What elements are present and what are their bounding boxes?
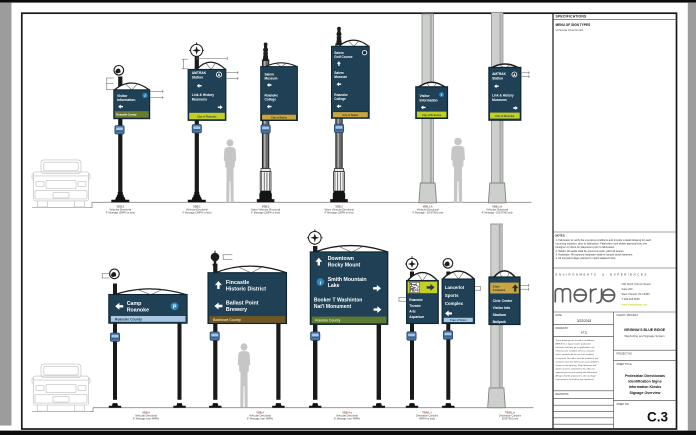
svg-text:KTQ: KTQ — [581, 331, 588, 335]
svg-text:(4MPH or less): (4MPH or less) — [419, 418, 435, 421]
svg-text:and is verified with the accou: and is verified with the account conditi… — [556, 353, 595, 356]
svg-text:100 North Church Street: 100 North Church Street — [622, 282, 651, 286]
svg-text:Aquarium: Aquarium — [409, 315, 424, 319]
svg-text:Botetourt County: Botetourt County — [213, 318, 241, 322]
svg-text:City of Salem: City of Salem — [271, 116, 288, 119]
svg-text:MERJE LLC layout and/or produc: MERJE LLC layout and/or production — [556, 343, 592, 346]
svg-text:Smith Mountain: Smith Mountain — [328, 277, 367, 283]
svg-text:8" Message (non 4MPH): 8" Message (non 4MPH) — [334, 418, 360, 421]
svg-text:Ballast Point: Ballast Point — [226, 301, 259, 307]
svg-text:8" Message (non 4MPH): 8" Message (non 4MPH) — [133, 418, 159, 421]
svg-text:These drawings are issued in c: These drawings are issued in confidence. — [556, 340, 596, 342]
svg-text:DRAWN BY: DRAWN BY — [556, 327, 569, 330]
svg-text:Complex: Complex — [493, 288, 506, 292]
svg-text:MENU OF SIGN TYPES: MENU OF SIGN TYPES — [556, 23, 591, 27]
svg-text:SPECIFICATIONS: SPECIFICATIONS — [556, 15, 588, 19]
svg-text:3. Hardware: All exposed hardw: 3. Hardware: All exposed hardware shall … — [556, 252, 634, 256]
svg-text:4" Message (2MPH or less): 4" Message (2MPH or less) — [182, 212, 211, 215]
svg-text:Theatre: Theatre — [409, 304, 421, 308]
svg-text:SHEET NO.: SHEET NO. — [617, 403, 630, 406]
svg-text:Roanoke County: Roanoke County — [115, 317, 142, 321]
svg-text:Pedestrian Directionals: Pedestrian Directionals — [625, 374, 665, 378]
svg-text:Information Kiosks: Information Kiosks — [629, 385, 662, 389]
svg-text:4" Message (2MPH or less): 4" Message (2MPH or less) — [324, 212, 353, 215]
svg-text:T 484.266.0648: T 484.266.0648 — [622, 297, 641, 301]
svg-text:4" Message - EXISTING pole: 4" Message - EXISTING pole — [412, 212, 444, 215]
svg-text:Lake: Lake — [328, 283, 340, 289]
svg-text:2. Welds: All welds shall be g: 2. Welds: All welds shall be ground smoo… — [556, 249, 625, 253]
svg-text:requirements cleaned by sign s: requirements cleaned by sign significant… — [556, 378, 595, 381]
svg-text:Rocky Mount: Rocky Mount — [328, 263, 361, 269]
svg-text:approval prior to proceeding w: approval prior to proceeding with fabric… — [556, 371, 599, 374]
svg-text:Town of Vinton: Town of Vinton — [450, 319, 467, 322]
svg-text:City of Roanoke: City of Roanoke — [495, 115, 515, 118]
svg-text:College: College — [265, 98, 277, 102]
svg-text:Museum: Museum — [334, 75, 347, 79]
svg-text:methods shall only be re-appli: methods shall only be re-applicable to a… — [556, 346, 595, 349]
svg-text:City of Roanoke: City of Roanoke — [197, 114, 217, 118]
svg-text:C.3: C.3 — [647, 410, 669, 425]
svg-text:1. Fabricator to verify the mo: 1. Fabricator to verify the mounting con… — [556, 238, 652, 242]
svg-text:Vehicular Directionals: Vehicular Directionals — [556, 28, 584, 32]
svg-text:Nat'l Monument: Nat'l Monument — [314, 304, 352, 310]
svg-text:Historic District: Historic District — [226, 286, 266, 292]
svg-text:Booker T Washinton: Booker T Washinton — [314, 298, 362, 304]
svg-text:All sign shall be produced to: All sign shall be produced to site visit… — [556, 375, 597, 378]
svg-text:City of Salem: City of Salem — [342, 114, 359, 117]
svg-text:Visitor: Visitor — [420, 94, 431, 98]
svg-text:Roanoke: Roanoke — [409, 298, 423, 302]
svg-text:CLIENT / PROJECT: CLIENT / PROJECT — [617, 314, 639, 317]
svg-text:8" Message (non 4MPH): 8" Message (non 4MPH) — [247, 418, 273, 421]
svg-text:Downtown: Downtown — [328, 256, 354, 262]
svg-text:Suite 200: Suite 200 — [622, 287, 634, 291]
svg-text:Civic Center: Civic Center — [493, 299, 513, 303]
svg-text:Complex: Complex — [445, 301, 464, 306]
svg-text:mounting situation, prior to f: mounting situation, prior to fabrication… — [556, 242, 648, 246]
svg-text:Station: Station — [492, 77, 503, 81]
svg-text:PROJECT NO.: PROJECT NO. — [617, 353, 633, 356]
svg-text:Stadium: Stadium — [493, 313, 506, 317]
svg-text:VIRGINIA'S BLUE RIDGE: VIRGINIA'S BLUE RIDGE — [624, 328, 666, 332]
svg-text:variations from the dimensions: variations from the dimensions and condi… — [556, 360, 599, 363]
svg-text:Camp: Camp — [127, 301, 142, 307]
svg-text:EXISTING pole: EXISTING pole — [502, 418, 519, 421]
svg-text:Signage Overview: Signage Overview — [630, 391, 661, 395]
svg-text:City of Roanoke: City of Roanoke — [422, 114, 442, 117]
svg-text:AMTRAK: AMTRAK — [492, 72, 507, 76]
svg-text:Fincastle: Fincastle — [226, 280, 249, 286]
svg-text:DATE: DATE — [556, 314, 563, 317]
svg-text:Franklin County: Franklin County — [315, 319, 340, 323]
svg-text:Museums: Museums — [192, 98, 207, 102]
svg-text:Museums: Museums — [492, 98, 507, 102]
svg-text:4" Message (2MPH or less): 4" Message (2MPH or less) — [251, 212, 280, 215]
svg-text:4" Message - EXISTING pole: 4" Message - EXISTING pole — [482, 212, 514, 215]
svg-text:Ballpark: Ballpark — [493, 320, 506, 324]
svg-text:Station: Station — [192, 76, 203, 80]
svg-text:Designer or Client for placeme: Designer or Client for placement prior t… — [556, 245, 616, 249]
svg-text:shown on this drawing. Shop dr: shown on this drawing. Shop drawings and — [556, 364, 598, 367]
svg-text:i: i — [441, 93, 442, 97]
svg-text:Brewery: Brewery — [226, 307, 247, 313]
svg-text:4" Message (2MPH or less): 4" Message (2MPH or less) — [106, 212, 135, 215]
svg-text:4. All exposed edges painted t: 4. All exposed edges painted to match ad… — [556, 256, 617, 260]
svg-text:REVISIONS: REVISIONS — [556, 393, 569, 396]
svg-text:www.merjedesign.com: www.merjedesign.com — [622, 303, 648, 307]
svg-text:College: College — [334, 97, 346, 101]
svg-text:Information: Information — [117, 98, 135, 102]
svg-text:Lancerlot: Lancerlot — [445, 285, 465, 290]
svg-text:3/22/2018: 3/22/2018 — [577, 319, 591, 323]
svg-text:Wayfinding and Signage System: Wayfinding and Signage System — [624, 334, 665, 338]
svg-text:P: P — [173, 304, 177, 310]
svg-text:West Chester, PA 19380: West Chester, PA 19380 — [622, 292, 651, 296]
svg-text:ENVIRONMENTS & EXPERIENCES: ENVIRONMENTS & EXPERIENCES — [556, 272, 648, 276]
svg-text:SHEET TITLE: SHEET TITLE — [617, 363, 632, 366]
svg-text:is required. This office shall: is required. This office shall be notifi… — [556, 357, 600, 360]
svg-text:Visitor Info: Visitor Info — [493, 306, 511, 310]
svg-text:Identification Signs: Identification Signs — [628, 380, 661, 384]
svg-text:Museum: Museum — [265, 76, 278, 80]
svg-text:otherwise per condition of foc: otherwise per condition of focus. Design… — [556, 350, 595, 353]
svg-text:Sports: Sports — [445, 293, 459, 298]
svg-text:Link & History: Link & History — [492, 94, 514, 98]
svg-text:AMTRAK: AMTRAK — [192, 71, 207, 75]
svg-text:NOTES:: NOTES: — [556, 234, 566, 238]
svg-text:Roanoke County: Roanoke County — [116, 113, 137, 117]
svg-text:Arts: Arts — [409, 309, 416, 313]
svg-text:Link & History: Link & History — [192, 93, 215, 97]
svg-text:Golf Course: Golf Course — [334, 55, 352, 59]
svg-text:Information: Information — [420, 98, 438, 102]
svg-text:details must be submitted to t: details must be submitted to this office… — [556, 367, 596, 370]
svg-text:Roanoke: Roanoke — [127, 307, 149, 313]
